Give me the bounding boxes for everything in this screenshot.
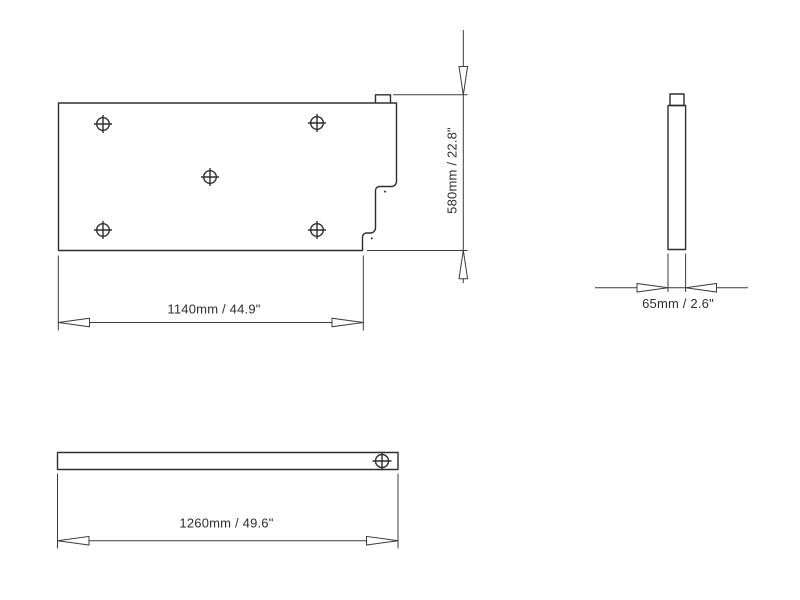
fillet-center-dot <box>371 237 373 239</box>
arrowhead-right-icon <box>637 284 668 293</box>
dimension-front-height: 580mm / 22.8" <box>367 30 468 283</box>
dimension-front-width: 1140mm / 44.9" <box>58 256 363 331</box>
side-bar-outline <box>668 106 686 250</box>
dimension-label-side-width: 65mm / 2.6" <box>642 296 714 311</box>
hole-top-left <box>94 115 112 133</box>
hole-bottom-bar <box>373 452 392 471</box>
arrowhead-right-icon <box>332 318 363 327</box>
hole-top-right <box>308 114 326 132</box>
arrowhead-left-icon <box>58 318 89 327</box>
arrowhead-up-icon <box>459 250 468 278</box>
arrowhead-left-icon <box>58 536 90 545</box>
front-view <box>59 95 397 251</box>
hole-bottom-right <box>308 221 326 239</box>
arrowhead-down-icon <box>459 67 468 96</box>
arrowhead-right-icon <box>367 536 399 545</box>
hole-bottom-left <box>94 221 112 239</box>
hole-center <box>201 168 219 186</box>
bottom-view <box>58 452 399 471</box>
side-view <box>668 94 686 250</box>
dimension-label-front-width: 1140mm / 44.9" <box>167 302 260 317</box>
technical-drawing: 580mm / 22.8" 1140mm / 44.9" 65mm / 2.6" <box>0 0 800 600</box>
arrowhead-left-icon <box>686 284 717 293</box>
side-top-tab <box>670 94 684 106</box>
dimension-bottom-length: 1260mm / 49.6" <box>58 474 399 549</box>
fillet-center-dot <box>384 191 386 193</box>
drawing-sheet: 580mm / 22.8" 1140mm / 44.9" 65mm / 2.6" <box>0 0 800 600</box>
plate-top-tab <box>376 95 391 103</box>
dimension-label-front-height: 580mm / 22.8" <box>445 127 460 214</box>
dimension-side-width: 65mm / 2.6" <box>595 254 748 312</box>
bottom-bar-outline <box>58 453 399 470</box>
dimension-label-bottom-length: 1260mm / 49.6" <box>179 516 273 531</box>
